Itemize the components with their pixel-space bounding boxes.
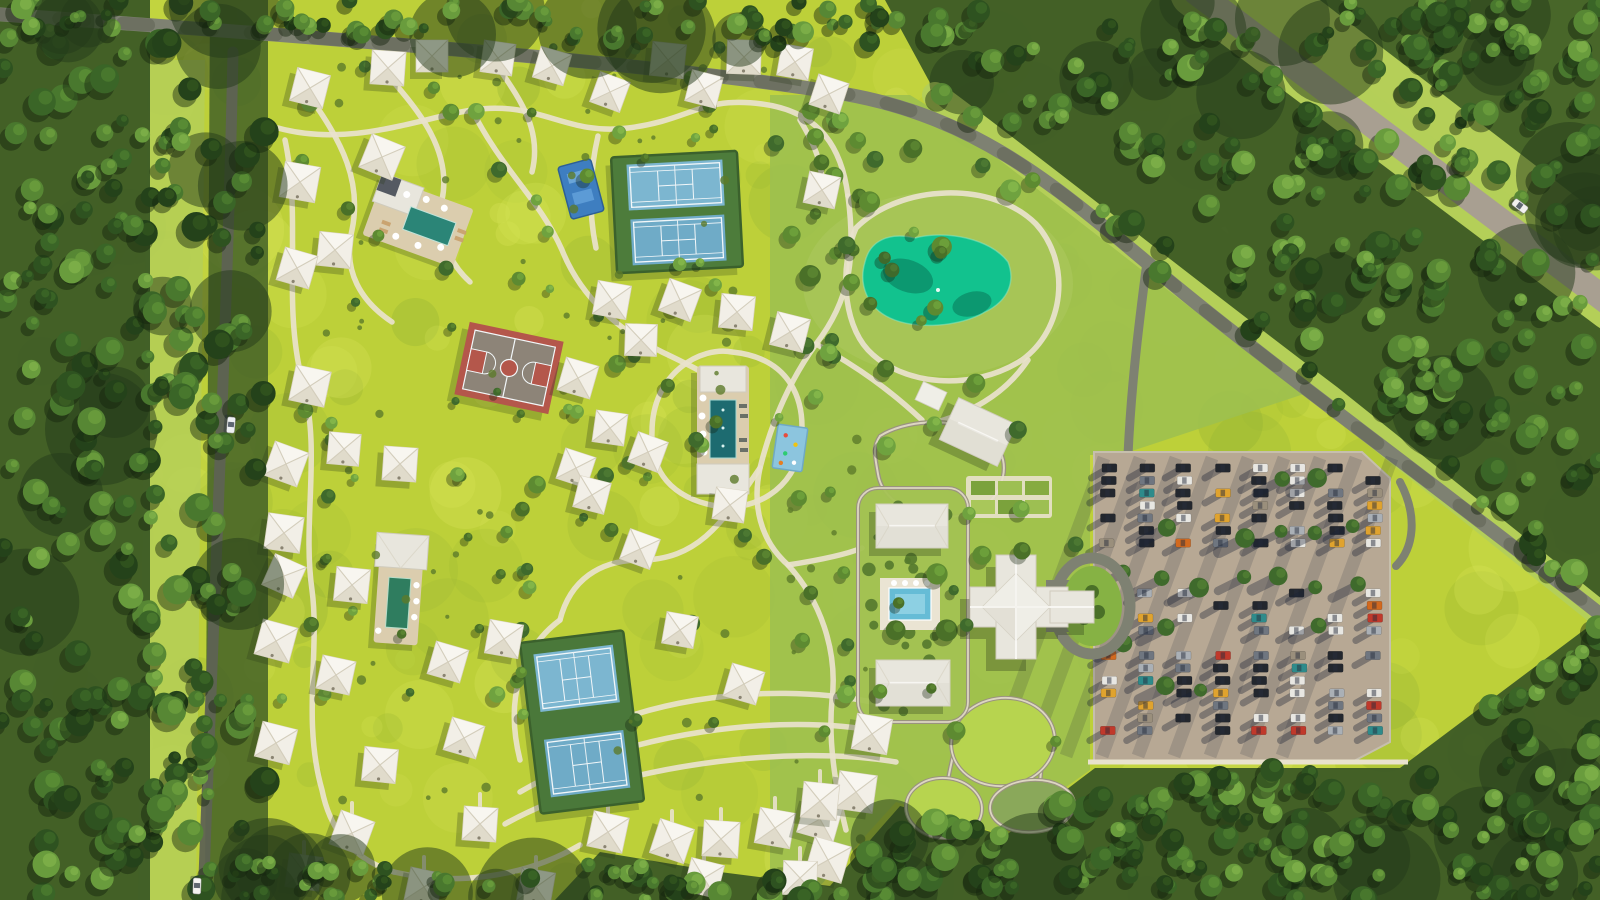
forest-tree-light <box>178 119 188 129</box>
tree-light <box>856 134 864 142</box>
car-glass <box>1144 490 1149 497</box>
ground-mottle <box>1485 614 1540 669</box>
forest-tree-light <box>209 395 219 405</box>
glamping-tent <box>844 712 893 762</box>
forest-tree-light <box>1374 309 1383 318</box>
tree-light <box>933 301 941 309</box>
forest-tree-light <box>30 718 40 728</box>
forest-tree-light <box>75 643 88 656</box>
car-glass <box>1259 627 1264 634</box>
tree-light <box>893 622 903 632</box>
forest-tree-light <box>442 875 452 885</box>
forest-tree-light <box>1583 664 1595 676</box>
forest-tree-light <box>199 673 210 684</box>
forest-tree-light <box>101 67 116 82</box>
forest-tree-light <box>899 823 912 836</box>
forest-tree-light <box>1576 783 1588 795</box>
tree-light <box>449 105 457 113</box>
tree-light <box>1054 737 1060 743</box>
forest-tree-light <box>1208 155 1219 166</box>
forest-tree-light <box>1448 457 1458 467</box>
forest-tree-light <box>300 15 308 23</box>
forest-tree-light <box>1458 869 1464 875</box>
forest-tree-light <box>243 892 248 897</box>
tree-light <box>497 163 505 171</box>
forest-tree-light <box>175 279 188 292</box>
forest-tree-light <box>1448 64 1460 76</box>
forest-tree-light <box>1363 252 1372 261</box>
bush <box>831 530 836 535</box>
forest-tree-light <box>41 289 49 297</box>
forest-tree-light <box>1519 295 1525 301</box>
car-glass <box>1145 502 1150 509</box>
forest-tree-light <box>122 760 132 770</box>
forest-tree-light <box>208 863 216 871</box>
forest-tree-light <box>245 695 252 702</box>
forest-tree-light <box>1534 549 1544 559</box>
forest-tree-light <box>1498 343 1508 353</box>
forest-tree-light <box>1576 41 1588 53</box>
forest-tree-light <box>1543 768 1553 778</box>
forest-tree-light <box>28 203 35 210</box>
forest-tree-light <box>651 878 657 884</box>
forest-tree-light <box>202 717 210 725</box>
forest-tree-light <box>1430 167 1443 180</box>
tree-light <box>778 414 782 418</box>
tree-light <box>456 469 463 476</box>
bush <box>569 204 578 213</box>
forest-tree-light <box>154 421 161 428</box>
parking-tree-light <box>1317 619 1325 627</box>
car-glass <box>1105 490 1110 497</box>
forest-tree-light <box>1163 238 1172 247</box>
forest-tree-light <box>381 876 388 883</box>
forest-tree-light <box>1316 187 1323 194</box>
forest-tree-light <box>1578 296 1585 303</box>
forest-tree-light <box>1396 265 1409 278</box>
forest-tree-light <box>121 116 127 122</box>
tree-light <box>849 676 855 682</box>
forest-tree-light <box>1398 338 1412 352</box>
tree-light <box>1016 423 1025 432</box>
tree-light <box>954 723 964 733</box>
bush <box>682 718 692 728</box>
bush <box>372 551 381 560</box>
forest-tree-light <box>172 782 185 795</box>
forest-tree-light <box>219 695 226 702</box>
bush <box>794 759 798 763</box>
forest-tree-light <box>151 645 163 657</box>
car-glass <box>1257 615 1262 622</box>
bush <box>357 325 362 330</box>
forest-tree-light <box>930 24 943 37</box>
courtyard-bush <box>885 561 894 570</box>
car-glass <box>1259 652 1264 659</box>
forest-tree-light <box>116 679 128 691</box>
forest-tree-light <box>65 534 77 546</box>
forest-tree-light <box>1345 12 1353 20</box>
car-glass <box>1294 502 1299 509</box>
tree-light <box>714 417 721 424</box>
forest-tree-light <box>321 19 329 27</box>
forest-tree-light <box>826 2 835 11</box>
forest-tree-light <box>1580 646 1587 653</box>
forest-tree-light <box>383 863 391 871</box>
forest-tree-light <box>1207 115 1218 126</box>
tree-light <box>762 550 770 558</box>
car-glass <box>1296 727 1301 734</box>
forest-tree-light <box>1461 856 1473 868</box>
tree-light <box>846 640 853 647</box>
forest-tree-light <box>32 633 41 642</box>
forest-tree-light <box>163 31 178 46</box>
forest-tree-light <box>1152 135 1163 146</box>
tree-light <box>789 228 798 237</box>
bush <box>788 507 794 513</box>
glamping-tent <box>747 806 796 856</box>
courtyard-bush <box>862 563 876 577</box>
forest-tree-light <box>214 435 222 443</box>
forest-tree-light <box>1269 760 1281 772</box>
forest-tree-light <box>1570 657 1579 666</box>
forest-tree-light <box>33 481 46 494</box>
forest-tree-light <box>123 497 134 508</box>
forest-tree-light <box>1571 471 1577 477</box>
forest-tree-light <box>907 869 919 881</box>
forest-tree-light <box>126 543 132 549</box>
forest-tree-light <box>1491 44 1498 51</box>
forest-tree-light <box>1505 494 1516 505</box>
forest-tree-light <box>201 736 214 749</box>
car-glass <box>1180 490 1185 497</box>
forest-tree-light <box>1305 103 1315 113</box>
forest-tree-light <box>1536 101 1548 113</box>
forest-tree-light <box>1281 256 1290 265</box>
forest-tree-light <box>1270 806 1280 816</box>
forest-tree-light <box>1550 561 1559 570</box>
forest-tree-light <box>990 51 1002 63</box>
forest-tree-light <box>29 180 40 191</box>
car-glass <box>1143 715 1148 722</box>
tree-light <box>844 687 853 696</box>
forest-tree-light <box>49 498 58 507</box>
bush <box>720 629 729 638</box>
forest-tree-light <box>29 362 38 371</box>
bush <box>359 240 364 245</box>
car-glass <box>1373 515 1378 522</box>
car-glass <box>1372 602 1377 609</box>
forest-tree-light <box>1367 264 1374 271</box>
tree-light <box>883 362 892 371</box>
forest-tree-light <box>1 540 10 549</box>
car-glass <box>1145 477 1150 484</box>
bush <box>495 117 502 124</box>
bush <box>615 270 623 278</box>
umbrella <box>913 580 919 586</box>
forest-tree-light <box>1128 212 1141 225</box>
garden-bed <box>998 481 1022 495</box>
bush <box>357 675 366 684</box>
car-glass <box>1218 690 1223 697</box>
forest-tree-light <box>1421 422 1429 430</box>
forest-tree-light <box>136 455 146 465</box>
forest-tree-light <box>1479 865 1491 877</box>
bush <box>637 138 642 143</box>
forest-tree-light <box>80 690 91 701</box>
parking-tree-light <box>1243 571 1250 578</box>
forest-tree-light <box>263 17 271 25</box>
bush <box>722 338 731 347</box>
car-glass <box>1221 652 1226 659</box>
tree-light <box>844 238 853 247</box>
car-glass <box>1220 677 1225 684</box>
tree-light <box>634 715 641 722</box>
forest-tree-light <box>123 48 130 55</box>
umbrella <box>699 413 706 420</box>
forest-tree-light <box>970 108 980 118</box>
tree-light <box>932 418 940 426</box>
forest-tree-light <box>1341 131 1352 142</box>
forest-tree-light <box>1440 80 1446 86</box>
tree-light <box>1008 182 1019 193</box>
forest-tree-light <box>528 870 538 880</box>
tree-light <box>644 154 648 158</box>
car-glass <box>1333 702 1338 709</box>
parking-tree-light <box>1351 521 1358 528</box>
forest-tree-light <box>1459 403 1470 414</box>
forest-tree-light <box>1327 28 1333 34</box>
tree-light <box>505 527 511 533</box>
forest-tree-light <box>1528 35 1539 46</box>
tree-light <box>694 134 699 139</box>
forest-tree-light <box>107 278 115 286</box>
forest-tree-light <box>191 660 200 669</box>
tree-light <box>467 534 471 538</box>
forest-tree-light <box>328 865 337 874</box>
forest-tree-light <box>74 13 79 18</box>
tree-light <box>474 105 482 113</box>
bush <box>516 138 521 143</box>
tree-light <box>617 127 624 134</box>
forest-tree-light <box>717 883 729 895</box>
forest-tree-light <box>1355 819 1364 828</box>
car-glass <box>1106 690 1111 697</box>
tree-light <box>920 316 925 321</box>
forest-tree-light <box>973 822 983 832</box>
bush <box>651 135 655 139</box>
tree-light <box>496 389 500 393</box>
glamping-tent <box>585 279 632 326</box>
forest-tree-light <box>1578 823 1591 836</box>
tree-light <box>535 477 544 486</box>
bush <box>807 564 815 572</box>
forest-tree-light <box>1358 9 1364 15</box>
tree-light <box>575 406 582 413</box>
car-glass <box>1143 665 1148 672</box>
forest-tree-light <box>1270 68 1280 78</box>
forest-tree-light <box>256 247 263 254</box>
tree-light <box>1074 538 1082 546</box>
car-glass <box>1334 690 1339 697</box>
forest-tree-light <box>1067 829 1081 843</box>
forest-tree-light <box>329 889 337 897</box>
tree-light <box>549 286 553 290</box>
forest-tree-light <box>193 215 208 230</box>
forest-tree-light <box>1516 689 1526 699</box>
glamping-tent <box>309 654 357 702</box>
parking-tree-light <box>1160 572 1168 580</box>
forest-tree-light <box>407 19 416 28</box>
forest-tree-light <box>1303 301 1314 312</box>
car-glass <box>1333 490 1338 497</box>
forest-tree-light <box>135 827 144 836</box>
forest-tree-light <box>47 235 56 244</box>
forest-tree-light <box>1068 867 1080 879</box>
tree-light <box>873 153 881 161</box>
forest-tree-light <box>70 867 78 875</box>
car-glass <box>1335 540 1340 547</box>
car-glass <box>1181 465 1186 472</box>
tree-light <box>444 262 452 270</box>
forest-tree-light <box>1496 1 1503 8</box>
tree-light <box>326 555 331 560</box>
car-glass <box>1373 615 1378 622</box>
forest-tree-light <box>1127 124 1138 135</box>
tree-light <box>807 267 818 278</box>
forest-tree-light <box>41 884 52 895</box>
forest-tree-light <box>1292 862 1303 873</box>
car-glass <box>1107 677 1112 684</box>
forest-tree-light <box>255 223 263 231</box>
parking-tree-light <box>1165 520 1174 529</box>
forest-tree-light <box>1341 239 1349 247</box>
forest-tree-light <box>1028 96 1035 103</box>
tree-light <box>346 203 353 210</box>
forest-tree-light <box>88 410 102 424</box>
forest-tree-light <box>261 120 276 135</box>
courtyard-pavilion <box>869 504 948 556</box>
forest-tree-light <box>111 181 120 190</box>
forest-tree-light <box>173 753 179 759</box>
parking-tree-light <box>1313 527 1320 534</box>
forest-tree-light <box>1032 43 1039 50</box>
forest-tree-light <box>174 578 189 593</box>
tree-light <box>830 334 837 341</box>
bush <box>761 67 767 73</box>
forest-tree-light <box>1453 177 1466 190</box>
car-glass <box>1181 540 1186 547</box>
forest-tree-light <box>642 28 651 37</box>
forest-tree-light <box>1386 369 1396 379</box>
forest-tree-light <box>165 189 175 199</box>
forest-tree-light <box>1446 136 1454 144</box>
car-glass <box>1333 715 1338 722</box>
forest-tree-light <box>1515 91 1523 99</box>
tree-light <box>930 684 935 689</box>
forest-tree-light <box>1010 114 1020 124</box>
forest-tree-light <box>1568 682 1577 691</box>
bush <box>696 794 703 801</box>
forest-tree-light <box>1499 413 1509 423</box>
forest-tree-light <box>653 0 661 8</box>
forest-tree-light <box>1307 363 1315 371</box>
tree-light <box>713 280 720 287</box>
forest-tree-light <box>1194 773 1207 786</box>
forest-tree-light <box>167 536 175 544</box>
forest-tree-light <box>1423 156 1431 164</box>
forest-tree-light <box>1460 158 1468 166</box>
forest-tree-light <box>1469 52 1478 61</box>
forest-tree-light <box>1367 785 1379 797</box>
car-glass <box>1333 465 1338 472</box>
tree-light <box>535 196 541 202</box>
tree-light <box>528 582 535 589</box>
forest-tree-light <box>1587 127 1600 140</box>
forest-tree-light <box>1163 877 1172 886</box>
forest-tree-light <box>13 124 24 135</box>
forest-tree-light <box>64 788 78 802</box>
forest-tree-light <box>144 275 152 283</box>
forest-tree-light <box>82 203 91 212</box>
car-glass <box>1221 527 1226 534</box>
tree-light <box>967 508 974 515</box>
forest-tree-light <box>1331 294 1343 306</box>
forest-tree-light <box>1424 109 1433 118</box>
forest-tree-light <box>1517 721 1530 734</box>
forest-tree-light <box>844 16 851 23</box>
forest-tree-light <box>1587 736 1600 749</box>
tree-light <box>520 668 526 674</box>
forest-tree-light <box>314 864 323 873</box>
forest-tree-light <box>1500 19 1507 26</box>
forest-tree-light <box>1084 79 1094 89</box>
forest-tree-light <box>1530 77 1540 87</box>
bush <box>581 153 589 161</box>
forest-tree-light <box>168 699 183 714</box>
forest-tree-light <box>283 0 292 9</box>
forest-tree-light <box>1170 831 1181 842</box>
parking-tree-light <box>1197 580 1207 590</box>
tree-light <box>567 405 572 410</box>
forest-tree-light <box>26 271 32 277</box>
forest-tree-light <box>1140 802 1147 809</box>
forest-tree-light <box>95 805 109 819</box>
tree-light <box>800 634 808 642</box>
car-glass <box>1259 715 1264 722</box>
forest-tree-light <box>1449 421 1457 429</box>
forest-tree-light <box>1467 341 1481 355</box>
tree-light <box>520 410 524 414</box>
bush <box>375 410 383 418</box>
forest-tree-light <box>239 173 249 183</box>
bush <box>714 371 719 376</box>
forest-tree-light <box>1520 46 1528 54</box>
forest-tree-light <box>1364 186 1370 192</box>
car-glass <box>1372 490 1377 497</box>
tree-light <box>980 548 990 558</box>
bush <box>338 796 347 805</box>
forest-tree-light <box>187 822 200 835</box>
tree-light <box>842 568 848 574</box>
tree-light <box>610 524 617 531</box>
forest-tree-light <box>1377 870 1383 876</box>
car-glass <box>1259 690 1264 697</box>
car-glass <box>1258 602 1263 609</box>
car-glass <box>1220 515 1225 522</box>
forest-tree-light <box>1151 157 1163 169</box>
bush <box>445 615 449 619</box>
forest-tree-light <box>271 868 278 875</box>
